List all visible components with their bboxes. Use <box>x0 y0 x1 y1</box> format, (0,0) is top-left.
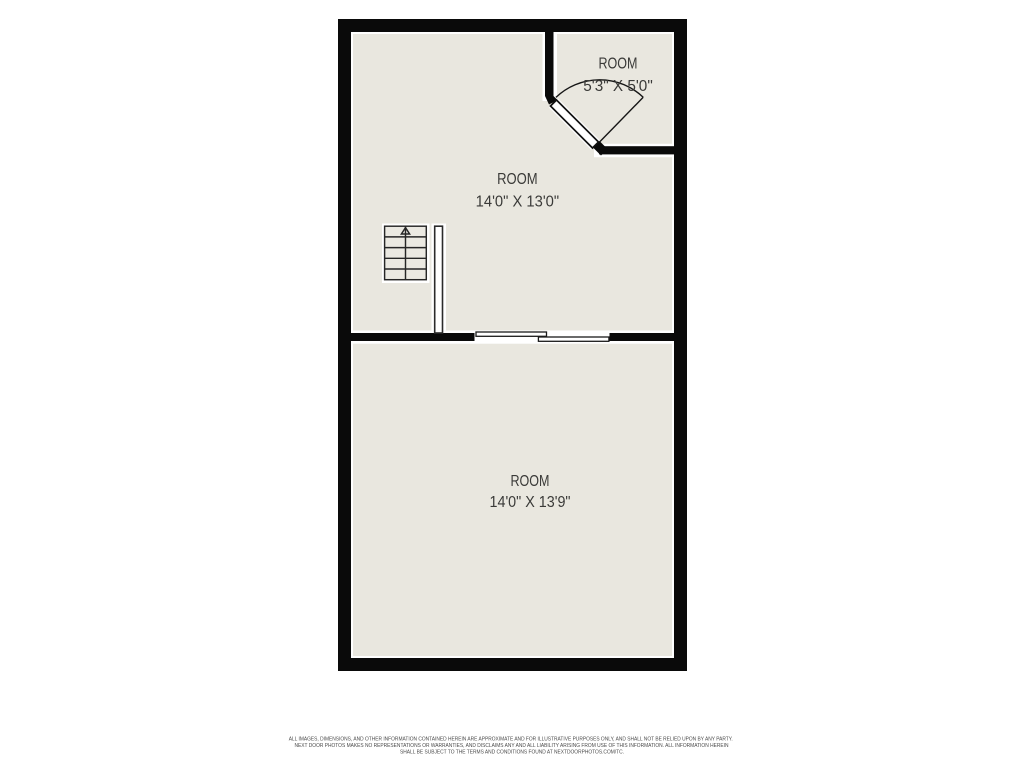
svg-text:ROOM: ROOM <box>599 56 638 73</box>
svg-text:NEXT DOOR PHOTOS MAKES NO REPR: NEXT DOOR PHOTOS MAKES NO REPRESENTATION… <box>295 743 729 749</box>
svg-text:ALL IMAGES, DIMENSIONS, AND OT: ALL IMAGES, DIMENSIONS, AND OTHER INFORM… <box>289 736 733 742</box>
svg-text:14'0" X 13'0": 14'0" X 13'0" <box>476 193 560 210</box>
svg-text:5'3" X 5'0": 5'3" X 5'0" <box>583 78 653 95</box>
svg-text:ROOM: ROOM <box>497 171 538 188</box>
svg-text:SHALL BE SUBJECT TO THE TERMS: SHALL BE SUBJECT TO THE TERMS AND CONDIT… <box>400 750 624 756</box>
svg-text:14'0" X 13'9": 14'0" X 13'9" <box>490 494 571 511</box>
svg-text:ROOM: ROOM <box>511 473 550 490</box>
